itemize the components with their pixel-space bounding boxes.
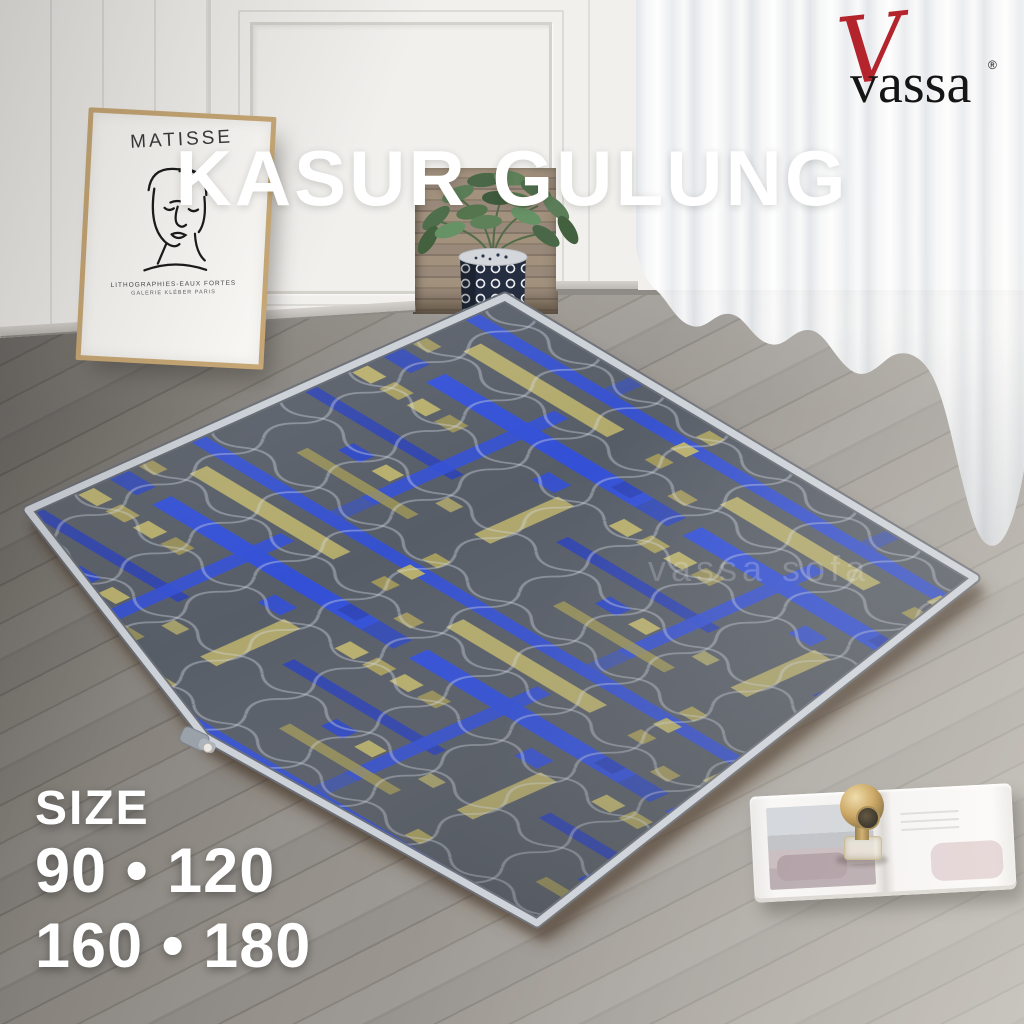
poster-caption-2: GALERIE KLÉBER PARIS: [131, 289, 216, 296]
book-right-page-text: [900, 804, 959, 837]
ornament-head: [840, 784, 884, 828]
size-row-1: 90 • 120: [35, 834, 311, 908]
size-heading: SIZE: [35, 784, 311, 834]
book-right-page-photo: [930, 840, 1004, 882]
gold-ornament: [834, 770, 890, 870]
size-panel: SIZE 90 • 120 160 • 180: [35, 784, 311, 983]
size-row-2: 160 • 180: [35, 909, 311, 983]
plant-vase: [459, 249, 527, 367]
page-title: KASUR GULUNG: [0, 133, 1024, 224]
product-image: MATISSE LITHOGRAPHIES-EAUX FORTES GALERI…: [0, 0, 1024, 1024]
watermark: vassa sofa: [648, 548, 870, 590]
poster-caption-1: LITHOGRAPHIES-EAUX FORTES: [111, 280, 237, 289]
ornament-lens: [856, 806, 880, 830]
logo-wordmark: vassa: [850, 56, 971, 112]
brand-logo: V vassa ®: [836, 20, 1006, 112]
registered-trademark-mark: ®: [988, 58, 997, 72]
